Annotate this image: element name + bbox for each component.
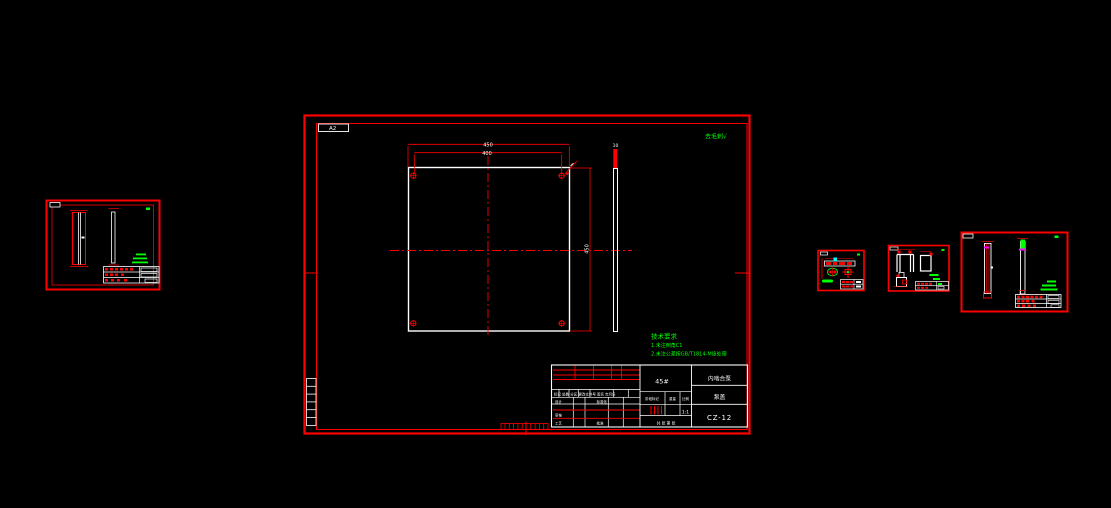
revision-grid: 标记 处数 分区 更改文件号 签名 年月日 设计 标准化 审核 工艺 批准	[552, 366, 640, 428]
grid-reference-column	[307, 379, 317, 426]
cad-canvas: A2 去毛刺√	[0, 0, 1111, 508]
round-component-right	[843, 266, 854, 278]
row-check: 审核	[555, 413, 563, 418]
detail-view	[894, 273, 909, 287]
dim-text-hole-spacing: 400	[482, 151, 492, 157]
surface-finish-note[interactable]: 去毛刺√	[705, 133, 727, 141]
dim-text-thickness: 10	[613, 143, 619, 149]
dim-text-overall-width: 450	[483, 143, 493, 149]
magenta-mark	[1019, 249, 1026, 251]
mini-title-block	[1016, 295, 1062, 308]
tech-note-small	[132, 254, 148, 264]
rod-front-view	[982, 242, 994, 299]
main-sheet: A2 去毛刺√	[305, 116, 750, 436]
sheet-format-label	[50, 203, 60, 208]
dim-thickness-lines	[613, 149, 617, 168]
dim-overall-height[interactable]: 450	[570, 168, 592, 331]
format-label-box[interactable]: A2	[319, 124, 349, 132]
revision-header: 标记 处数 分区 更改文件号 签名 年月日	[554, 392, 616, 397]
sheet-format-label	[963, 234, 973, 238]
mini-title-block	[104, 267, 160, 284]
green-note-blob	[930, 274, 941, 280]
round-component-left	[827, 268, 838, 277]
finish-mark	[857, 254, 860, 256]
title-block[interactable]: 标记 处数 分区 更改文件号 签名 年月日 设计 标准化 审核 工艺 批准 45…	[552, 365, 748, 427]
finish-mark	[1055, 236, 1059, 239]
drawing-number: CZ-12	[707, 414, 732, 422]
green-note-blob	[822, 280, 833, 283]
bracket-sheet[interactable]	[889, 246, 950, 292]
corner-holes	[410, 172, 565, 327]
left-part-sheet[interactable]	[47, 201, 160, 290]
org-name: 内啮合泵	[708, 375, 731, 383]
material-scale-cells: 45# 阶段标记 重量 比例 1:1 共 张 第 张	[640, 378, 692, 426]
dim-text-overall-height: 450	[585, 244, 591, 254]
finish-mark	[146, 208, 150, 211]
tech-requirements-note[interactable]: 技术要求 1.未注倒角C1 2.未注公差按GB/T1814-M级处理	[651, 332, 727, 358]
scale-label: 比例	[682, 396, 689, 401]
row-design: 设计	[555, 399, 563, 404]
tech-req-title: 技术要求	[651, 332, 678, 341]
green-cap	[1021, 240, 1026, 249]
right-part-sheet[interactable]	[962, 233, 1068, 312]
weight-label: 重量	[669, 396, 676, 401]
plate-side-view[interactable]: 10	[613, 143, 619, 332]
scale-value: 1:1	[682, 410, 689, 416]
name-number-cells: 内啮合泵 泵盖 CZ-12	[692, 375, 748, 423]
sheet-format-label	[821, 252, 828, 255]
material-value: 45#	[655, 378, 669, 386]
mini-title-block	[841, 280, 864, 290]
sheet-count: 共 张 第 张	[657, 421, 676, 426]
bar-view	[825, 258, 856, 267]
cyan-key-mark	[834, 258, 838, 262]
tech-req-line2: 2.未注公差按GB/T1814-M级处理	[651, 351, 727, 358]
mini-title-block	[916, 282, 949, 291]
channel-view	[895, 250, 915, 273]
finish-mark	[942, 249, 945, 251]
part-name: 泵盖	[714, 393, 726, 401]
format-label: A2	[329, 126, 336, 132]
magenta-mark	[984, 247, 989, 249]
strip-side-view	[109, 209, 120, 266]
rod-side-view	[1017, 239, 1028, 295]
plate-front-view[interactable]	[390, 156, 632, 338]
tech-req-line1: 1.未注倒角C1	[651, 342, 682, 349]
assembly-sheet[interactable]	[818, 251, 864, 291]
tech-note-small	[1041, 281, 1058, 291]
strip-front-view	[70, 211, 88, 267]
cad-model-space: A2 去毛刺√	[0, 0, 1111, 508]
row-standard: 标准化	[597, 399, 608, 404]
row-approve: 批准	[597, 421, 605, 426]
stage-label: 阶段标记	[645, 396, 659, 401]
main-sheet-frame	[305, 116, 750, 436]
rect-view	[921, 252, 933, 272]
row-process: 工艺	[555, 421, 563, 426]
